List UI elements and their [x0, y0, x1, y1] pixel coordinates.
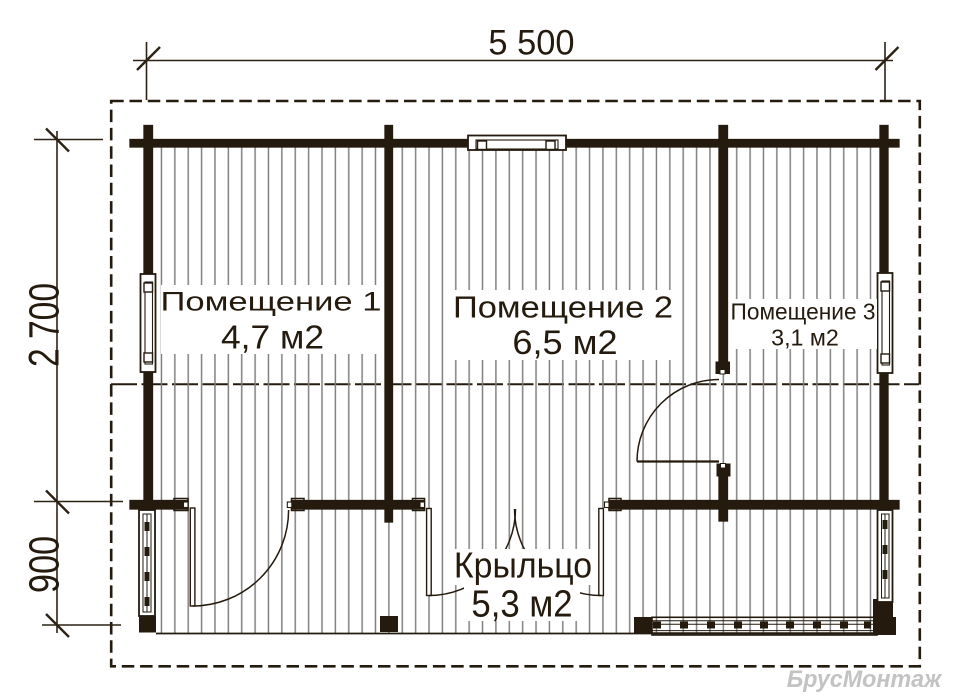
- svg-text:2 700: 2 700: [21, 283, 69, 367]
- svg-text:3,1 м2: 3,1 м2: [771, 324, 839, 350]
- svg-text:6,5 м2: 6,5 м2: [512, 324, 617, 362]
- svg-text:900: 900: [21, 536, 69, 593]
- svg-text:Помещение 1: Помещение 1: [160, 286, 381, 316]
- svg-text:БрусМонтаж: БрусМонтаж: [787, 667, 943, 693]
- svg-text:5,3 м2: 5,3 м2: [471, 582, 572, 625]
- svg-text:4,7 м2: 4,7 м2: [221, 319, 324, 356]
- svg-text:5 500: 5 500: [488, 24, 574, 62]
- svg-text:Помещение 3: Помещение 3: [730, 298, 875, 324]
- svg-text:Крыльцо: Крыльцо: [454, 546, 592, 586]
- svg-text:Помещение 2: Помещение 2: [453, 289, 673, 324]
